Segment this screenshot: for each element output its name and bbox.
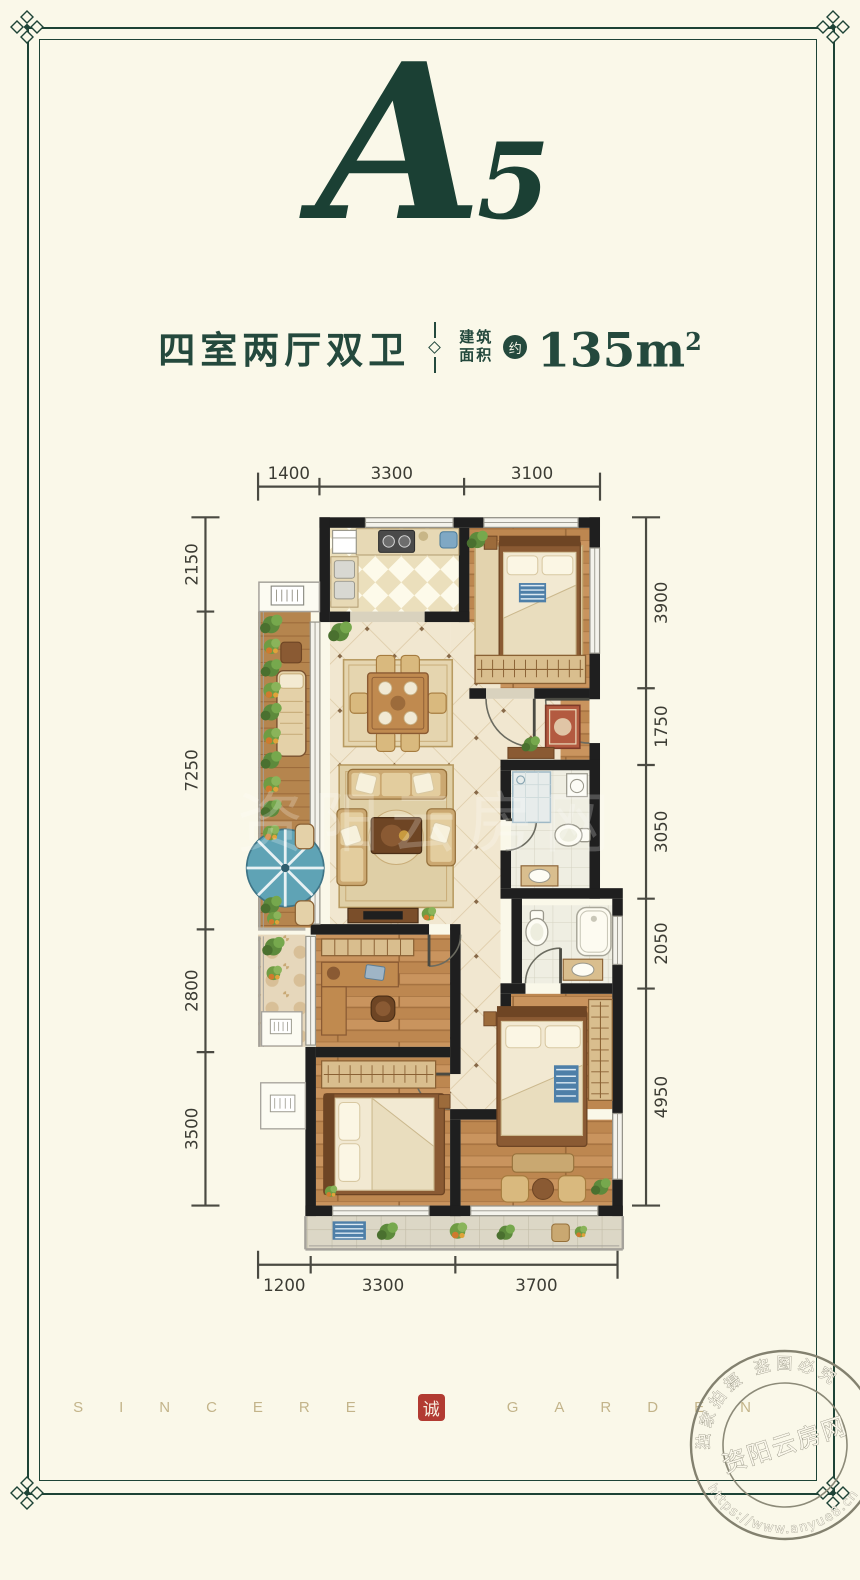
bathtub: [577, 907, 611, 955]
bedroom2-wardrobe: [322, 1061, 436, 1088]
balcony-seat-2: [295, 901, 313, 926]
dim-label: 4950: [652, 1076, 671, 1118]
dim-label: 3700: [515, 1276, 557, 1295]
tv-console: [348, 908, 418, 922]
dim-label: 2050: [652, 922, 671, 964]
master-wardrobe: [589, 1000, 613, 1101]
dim-label: 3900: [652, 582, 671, 624]
watermark-stamp: 独家拍摄 盗图必究 https://www.anyue8.cn 资阳云房网: [650, 1310, 860, 1580]
area-block: 建筑 面积 约 135m2: [459, 322, 702, 372]
stove: [379, 530, 415, 552]
bed-bench: [512, 1154, 573, 1172]
vanity-2: [563, 959, 602, 980]
brand-left: SINCERE: [73, 1399, 392, 1416]
dim-label: 3050: [652, 811, 671, 853]
nightstand: [439, 1095, 450, 1109]
nightstand: [484, 1012, 496, 1026]
bedroom-1: [467, 531, 586, 684]
kitchen-counter-sink: [331, 557, 358, 607]
fridge: [333, 530, 357, 553]
bedroom1-bed: [499, 536, 580, 668]
vanity-1: [521, 866, 558, 886]
dim-label: 1750: [652, 705, 671, 747]
sitting-corner: [501, 1176, 585, 1202]
unit-label: A5: [0, 28, 860, 296]
ac-platform-side: [261, 1083, 306, 1129]
kitchen-sink-basin: [440, 532, 457, 548]
bedroom1-wardrobe: [475, 655, 585, 683]
corner-ornament-bottom-left: [10, 1476, 44, 1510]
floor-plan: 资阳云房网 1400 3300 3100 1200 3300 3700 2150…: [144, 434, 679, 1302]
blue-throw: [554, 1065, 579, 1102]
approx-badge: 约: [503, 335, 527, 359]
balcony-small-table: [552, 1224, 570, 1242]
bedroom2-bed: [324, 1094, 445, 1195]
area-label: 建筑 面积: [459, 329, 493, 365]
bookshelf: [322, 939, 414, 956]
plan-watermark: 资阳云房网: [237, 786, 621, 860]
dim-label: 2800: [183, 970, 202, 1012]
title-divider: [430, 322, 439, 373]
area-value: 135m2: [537, 322, 702, 372]
dim-label: 3100: [511, 464, 553, 483]
dining-area: [344, 655, 453, 751]
brand-seal: 诚: [418, 1394, 445, 1421]
utility-box: [262, 1012, 302, 1046]
dim-label: 3300: [371, 464, 413, 483]
kitchen-deco: [419, 531, 429, 541]
dim-label: 7250: [183, 749, 202, 791]
balcony-table: [281, 642, 302, 663]
flyer-page: { "header": { "unit": "A5" }, "title": {…: [0, 0, 860, 1528]
dim-label: 1400: [268, 464, 310, 483]
kitchen-threshold: [350, 612, 425, 623]
desk-chair: [371, 996, 395, 1021]
dim-label: 3300: [362, 1276, 404, 1295]
diamond-ornament-icon: [428, 341, 441, 354]
entry-rug: [546, 705, 580, 748]
lounge-chair: [277, 671, 306, 756]
master-bed: [497, 1006, 587, 1146]
dim-label: 3500: [183, 1108, 202, 1150]
dim-label: 2150: [183, 543, 202, 585]
dining-table: [368, 673, 428, 733]
bedroom-2: [322, 1061, 450, 1197]
stamp-site-name: 资阳云房网: [719, 1412, 851, 1479]
layout-name: 四室两厅双卫: [158, 320, 410, 374]
bedroom1-threshold: [486, 688, 534, 699]
ac-platform-top: [259, 582, 319, 611]
dim-label: 1200: [263, 1276, 305, 1295]
title-row: 四室两厅双卫 建筑 面积 约 135m2: [0, 320, 860, 374]
